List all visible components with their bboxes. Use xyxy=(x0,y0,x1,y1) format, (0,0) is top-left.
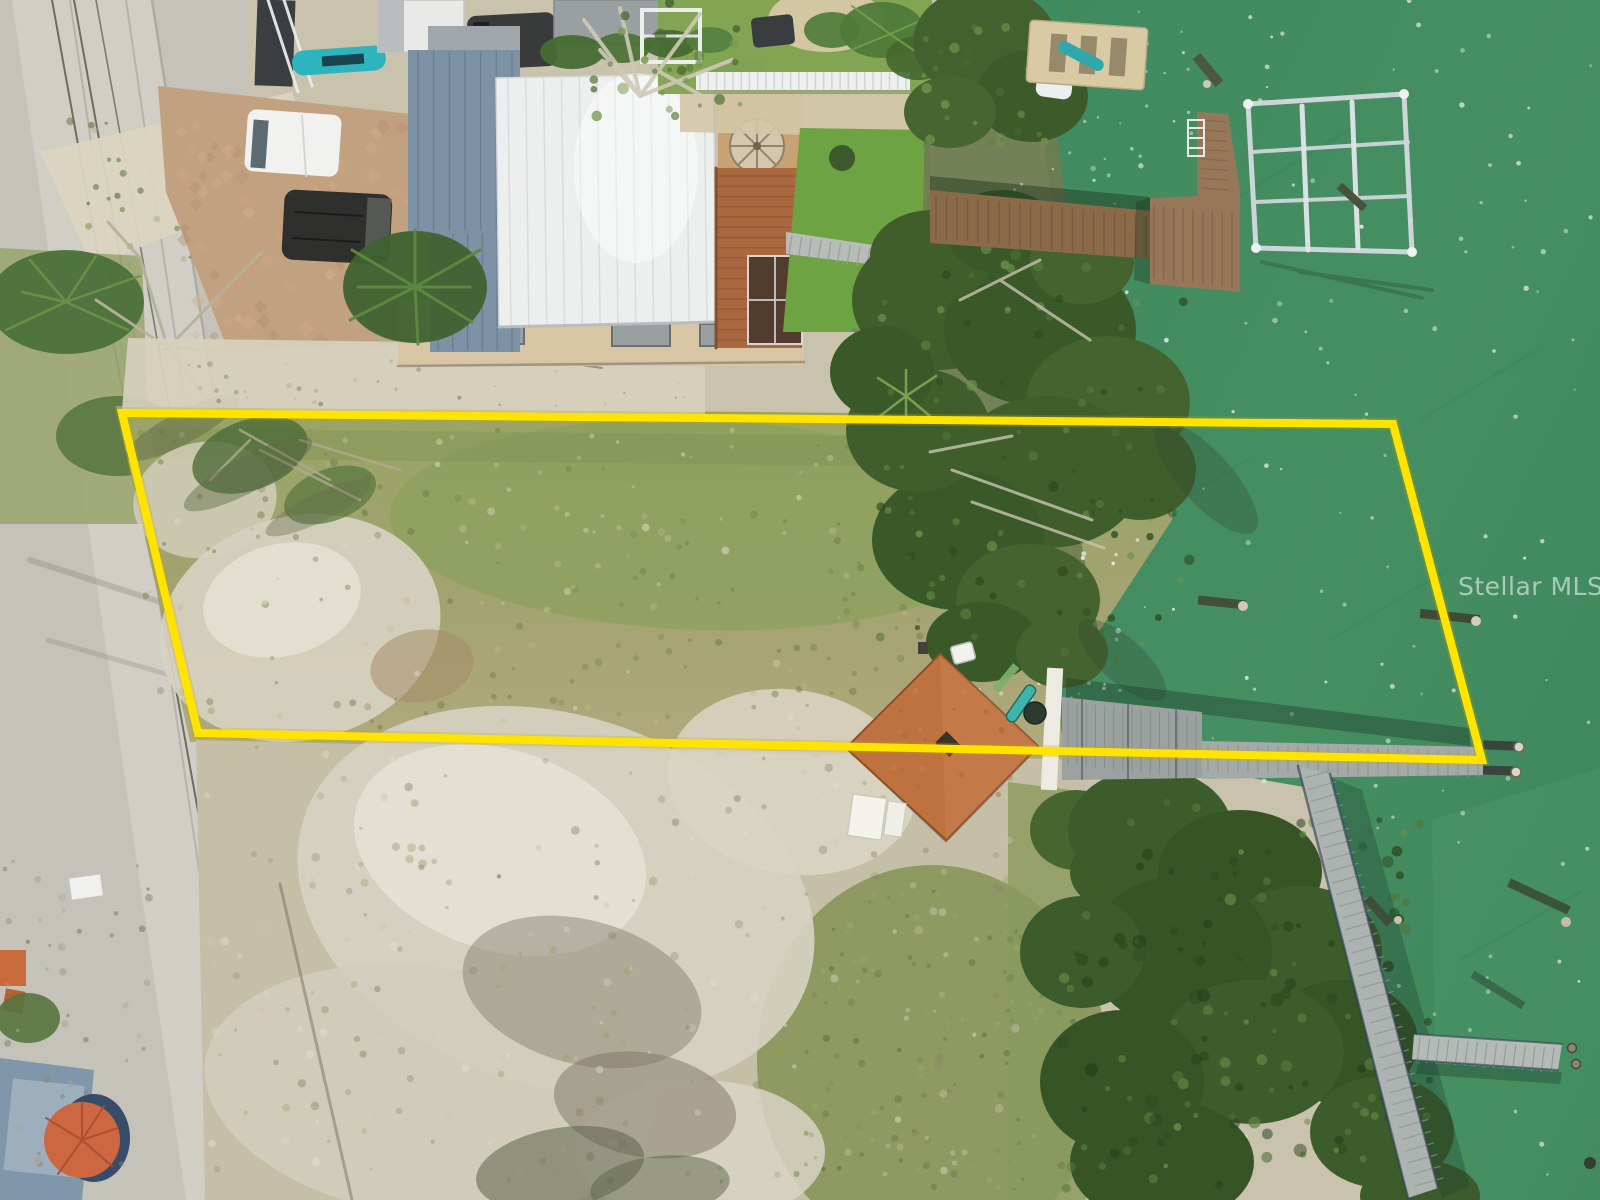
piling-5-cap xyxy=(1394,916,1402,924)
piling-6-cap xyxy=(1561,917,1571,927)
branch-piling-1 xyxy=(1568,1044,1577,1053)
dock-end-beam-1 xyxy=(1483,740,1517,750)
piling-3-cap xyxy=(1471,616,1481,626)
boatlift-post-1 xyxy=(1243,99,1253,109)
dock-piling-cap-1 xyxy=(1514,742,1524,752)
dock-L-shadow xyxy=(1134,198,1150,284)
spiral-stair-center xyxy=(753,142,761,150)
mangrove-top-3 xyxy=(904,76,996,148)
roof-white-glare xyxy=(574,73,698,263)
orange-bin-1 xyxy=(0,950,26,986)
turf-bush xyxy=(829,145,855,171)
white-fence xyxy=(696,72,910,90)
dark-post xyxy=(918,642,928,654)
piling-1-cap xyxy=(1203,80,1211,88)
rv-front-panel xyxy=(378,0,404,52)
dock-end-beam-2 xyxy=(1483,765,1515,775)
floating-dock-slot-3 xyxy=(1109,37,1128,76)
branch-piling-2 xyxy=(1572,1060,1581,1069)
mangrove-br-9 xyxy=(1020,896,1144,1008)
aerial-photo xyxy=(0,0,1600,1200)
boatlift-post-3 xyxy=(1407,247,1417,257)
piling-4-cap xyxy=(1238,601,1248,611)
hedge-4 xyxy=(687,27,733,53)
aerial-photo-viewport: Stellar MLS xyxy=(0,0,1600,1200)
piling-8 xyxy=(1584,1157,1596,1169)
dark-tub xyxy=(1024,702,1046,724)
white-panel-1 xyxy=(847,794,887,840)
roof-blue-upper xyxy=(428,26,520,52)
boatlift-post-2 xyxy=(1399,89,1409,99)
hedge-1 xyxy=(540,35,604,69)
white-bench xyxy=(69,874,104,900)
water-bright-corner xyxy=(1432,768,1600,1200)
grill xyxy=(751,14,796,48)
mangrove-main-8 xyxy=(830,326,934,418)
boatlift-post-4 xyxy=(1251,243,1261,253)
dock-piling-cap-2 xyxy=(1511,767,1521,777)
